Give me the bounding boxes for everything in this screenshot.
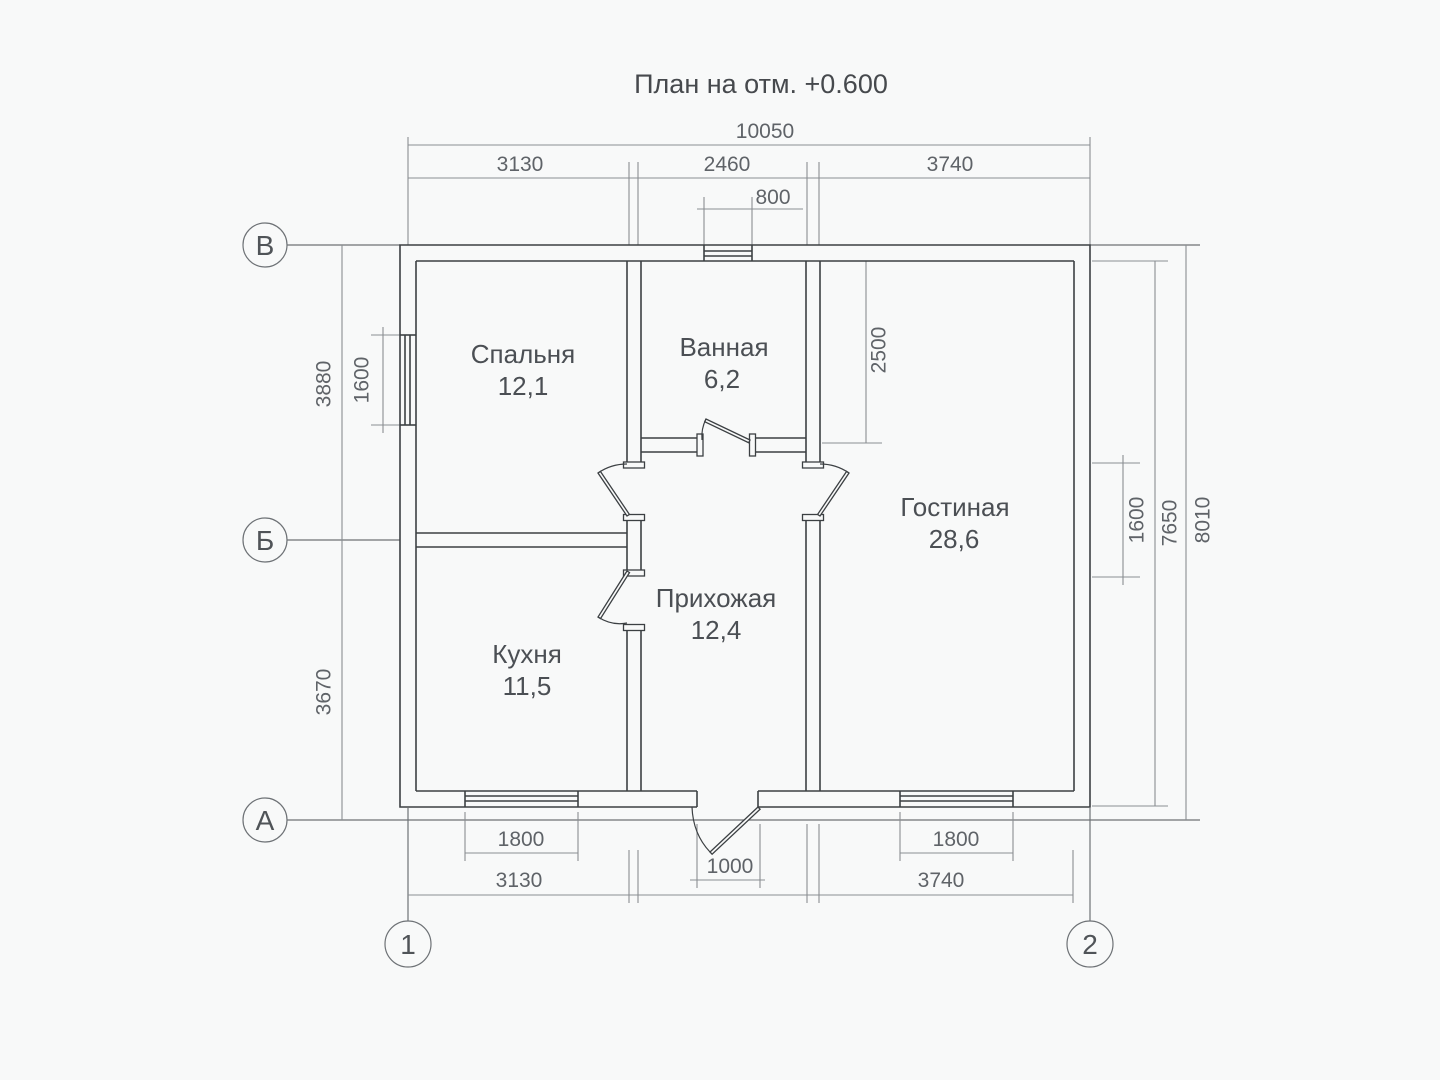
dimensions-right: 2500 1600 7650 8010 [822, 245, 1215, 820]
room-area-hallway: 12,4 [691, 615, 742, 645]
door-jamb [750, 434, 756, 456]
windows [400, 245, 1013, 807]
axis-label-a: А [256, 805, 275, 836]
window-symbol-bottom-left [465, 791, 578, 807]
door-jamb [624, 462, 645, 468]
dim-entrance-door: 1000 [707, 855, 754, 878]
room-label-kitchen: Кухня [492, 639, 562, 669]
window-symbol-left [400, 335, 416, 425]
door-symbol-entrance [692, 807, 760, 854]
window-symbol-bottom-right [900, 791, 1013, 807]
dim-overall-width: 10050 [736, 120, 794, 143]
door-symbol-bathroom [702, 419, 750, 443]
floor-plan-drawing: План на отм. +0.600 В Б А 1 2 10050 3130… [0, 0, 1440, 1080]
room-label-bedroom: Спальня [471, 339, 575, 369]
dim-bottom-window-left: 1800 [498, 828, 545, 851]
dim-bottom-window-right: 1800 [933, 828, 980, 851]
room-area-bathroom: 6,2 [704, 364, 740, 394]
dim-bottom-living: 3740 [918, 869, 965, 892]
axis-label-1: 1 [400, 929, 416, 960]
dim-overall-height: 8010 [1192, 497, 1215, 544]
dim-top-bedroom: 3130 [497, 153, 544, 176]
room-labels: Спальня 12,1 Ванная 6,2 Гостиная 28,6 Пр… [471, 332, 1010, 701]
dim-top-window: 800 [755, 186, 790, 209]
room-label-bathroom: Ванная [679, 332, 768, 362]
room-label-hallway: Прихожая [656, 583, 776, 613]
door-symbol-kitchen [598, 571, 630, 624]
door-symbol-living [818, 464, 849, 516]
room-area-kitchen: 11,5 [503, 671, 552, 701]
dim-right-window: 1600 [1126, 497, 1149, 544]
room-area-living: 28,6 [929, 524, 980, 554]
walls [400, 245, 1090, 807]
door-symbol-bedroom [598, 464, 629, 516]
dim-left-upper: 3880 [313, 361, 336, 408]
door-jamb [803, 462, 824, 468]
dim-bottom-kitchen: 3130 [496, 869, 543, 892]
dim-left-lower: 3670 [313, 669, 336, 716]
floor-plan-page: План на отм. +0.600 В Б А 1 2 10050 3130… [0, 0, 1440, 1080]
dim-left-window: 1600 [351, 357, 374, 404]
axis-label-2: 2 [1082, 929, 1098, 960]
axis-label-v: В [256, 230, 275, 261]
axis-label-b: Б [256, 525, 274, 556]
room-area-bedroom: 12,1 [498, 371, 549, 401]
dim-right-inner-height: 7650 [1159, 500, 1182, 547]
dim-bathroom-depth: 2500 [868, 327, 891, 374]
plan-title: План на отм. +0.600 [634, 69, 888, 99]
room-label-living: Гостиная [900, 492, 1009, 522]
dim-top-living: 3740 [927, 153, 974, 176]
dimensions-left: 3880 3670 1600 [313, 245, 401, 820]
window-symbol-top [704, 245, 752, 261]
dim-top-bath: 2460 [704, 153, 751, 176]
door-jamb [624, 625, 645, 631]
dimensions-top: 10050 3130 2460 3740 800 [408, 120, 1090, 245]
